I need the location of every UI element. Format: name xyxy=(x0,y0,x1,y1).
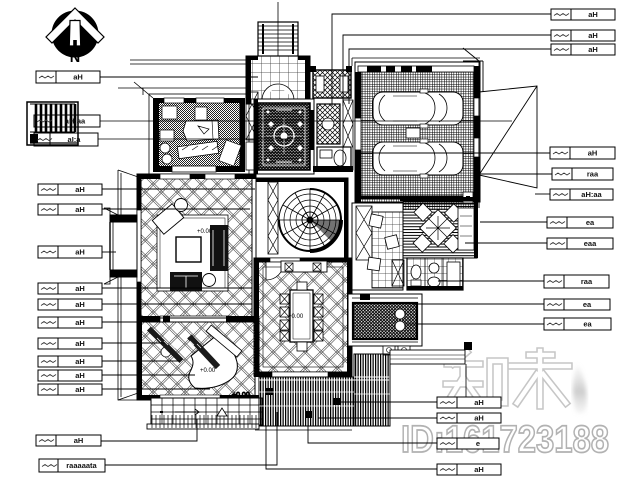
svg-text:+0.00: +0.00 xyxy=(232,392,250,399)
svg-text:aH: aH xyxy=(75,284,85,293)
svg-text:aH: aH xyxy=(474,465,484,474)
svg-text:aH: aH xyxy=(588,10,598,19)
svg-text:aH:aa: aH:aa xyxy=(581,190,602,199)
svg-text:aH: aH xyxy=(474,414,484,423)
svg-text:aH: aH xyxy=(75,385,85,394)
svg-text:aH: aH xyxy=(75,318,85,327)
svg-text:aH: aH xyxy=(75,371,85,380)
svg-text:aH: aH xyxy=(75,300,85,309)
svg-text:+0.00: +0.00 xyxy=(288,314,304,320)
svg-text:+0.00: +0.00 xyxy=(197,229,213,235)
svg-text:ea: ea xyxy=(583,320,592,329)
svg-text:e: e xyxy=(476,439,480,448)
svg-text:raaaaata: raaaaata xyxy=(66,461,97,470)
svg-text:aI:a: aI:a xyxy=(68,135,82,144)
svg-text:aH: aH xyxy=(474,398,484,407)
svg-text:ea: ea xyxy=(583,300,592,309)
svg-text:+0.00: +0.00 xyxy=(200,368,216,374)
svg-text:aH: aH xyxy=(588,149,598,158)
svg-text:N: N xyxy=(70,50,80,66)
svg-text:aH: aH xyxy=(74,436,84,445)
svg-text:aH: aH xyxy=(75,357,85,366)
svg-text:ID:161723188: ID:161723188 xyxy=(401,419,609,461)
svg-text:aH: aH xyxy=(588,45,598,54)
svg-text:aH: aH xyxy=(75,248,85,257)
svg-text:eaa: eaa xyxy=(584,239,597,248)
svg-text:aH:aa: aH:aa xyxy=(65,117,86,126)
svg-text:ea: ea xyxy=(586,218,595,227)
svg-text:raa: raa xyxy=(581,277,593,286)
svg-text:aH: aH xyxy=(75,339,85,348)
svg-text:aH: aH xyxy=(75,205,85,214)
svg-text:aH: aH xyxy=(73,73,83,82)
svg-text:aH: aH xyxy=(75,185,85,194)
svg-text:raa: raa xyxy=(587,170,599,179)
svg-text:aH: aH xyxy=(588,31,598,40)
